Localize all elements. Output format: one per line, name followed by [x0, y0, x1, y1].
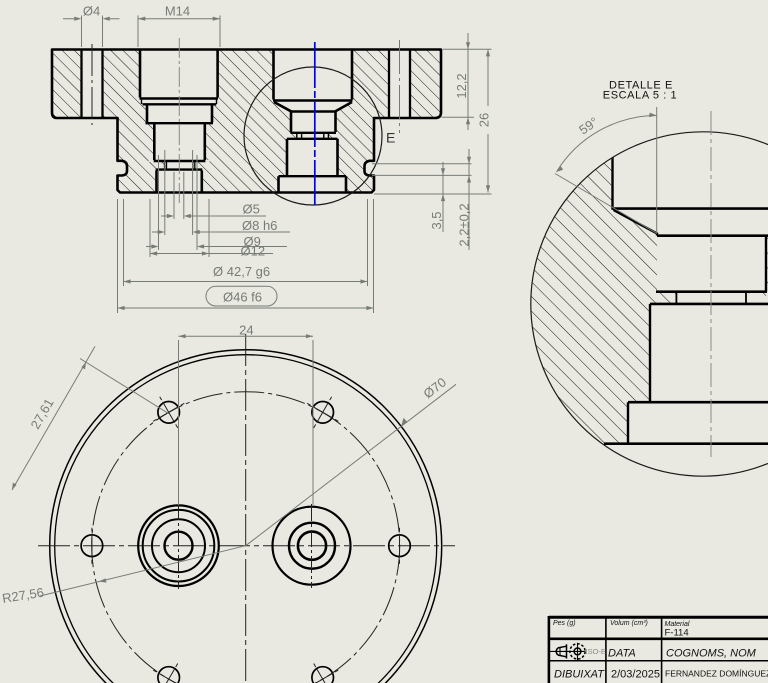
svg-text:2,2±0,2: 2,2±0,2 — [457, 203, 472, 246]
svg-text:E: E — [386, 130, 395, 146]
svg-text:Ø8 h6: Ø8 h6 — [242, 218, 277, 233]
svg-text:12,2: 12,2 — [454, 73, 469, 98]
svg-text:Ø4: Ø4 — [83, 4, 100, 19]
svg-text:DATA: DATA — [608, 648, 636, 660]
svg-text:ESCALA 5 : 1: ESCALA 5 : 1 — [603, 90, 677, 102]
svg-text:M14: M14 — [165, 4, 190, 19]
svg-text:Ø 42,7 g6: Ø 42,7 g6 — [213, 264, 270, 279]
svg-text:ISO-E: ISO-E — [586, 647, 606, 656]
svg-text:F-114: F-114 — [665, 628, 689, 639]
svg-text:26: 26 — [477, 113, 492, 127]
svg-text:2/03/2025: 2/03/2025 — [611, 669, 660, 681]
svg-text:3,5: 3,5 — [429, 211, 444, 229]
svg-text:Ø46 f6: Ø46 f6 — [223, 290, 262, 305]
svg-text:Ø12: Ø12 — [241, 244, 266, 259]
svg-text:24: 24 — [239, 323, 253, 338]
svg-text:Pes (g): Pes (g) — [553, 620, 576, 627]
svg-text:Volum (cm³): Volum (cm³) — [610, 620, 648, 627]
svg-text:FERNANDEZ DOMÍNGUEZ, A: FERNANDEZ DOMÍNGUEZ, A — [665, 668, 768, 678]
svg-text:COGNOMS, NOM: COGNOMS, NOM — [666, 648, 757, 660]
svg-text:DIBUIXAT: DIBUIXAT — [554, 669, 605, 681]
svg-text:Ø5: Ø5 — [243, 202, 260, 217]
